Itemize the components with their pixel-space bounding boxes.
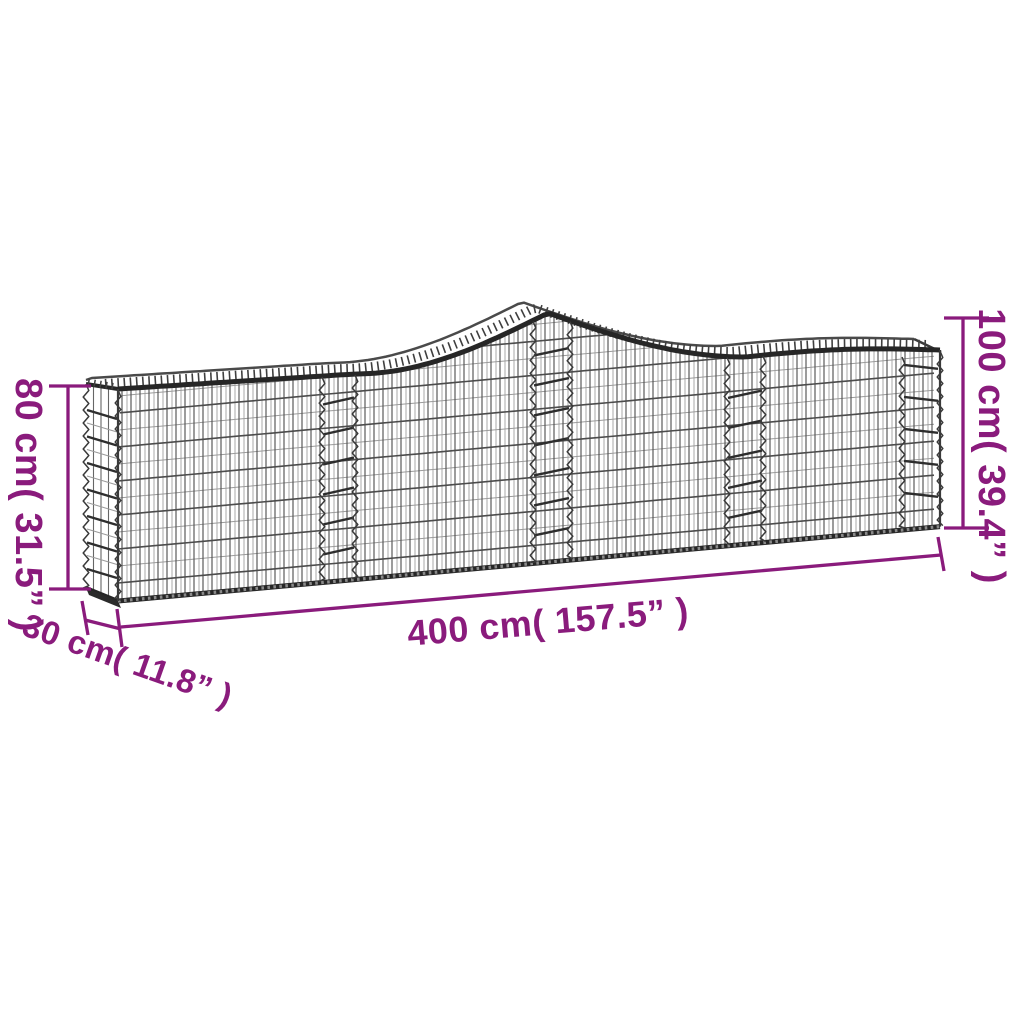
gabion-dimension-diagram: 80 cm( 31.5” ) 30 cm( 11.8” ) 400 cm( 15…: [0, 0, 1024, 1024]
diagram-stage: 80 cm( 31.5” ) 30 cm( 11.8” ) 400 cm( 15…: [0, 0, 1024, 1024]
top-face-cross-wires: [105, 308, 927, 383]
mesh-panel: [118, 288, 938, 602]
gabion-basket-drawing: [83, 288, 943, 608]
depth-label: 30 cm( 11.8” ): [18, 606, 238, 714]
dimension-height-left: [49, 386, 91, 589]
height-right-label: 100 cm( 39.4” ): [970, 308, 1012, 584]
height-left-label: 80 cm( 31.5” ): [7, 378, 49, 632]
